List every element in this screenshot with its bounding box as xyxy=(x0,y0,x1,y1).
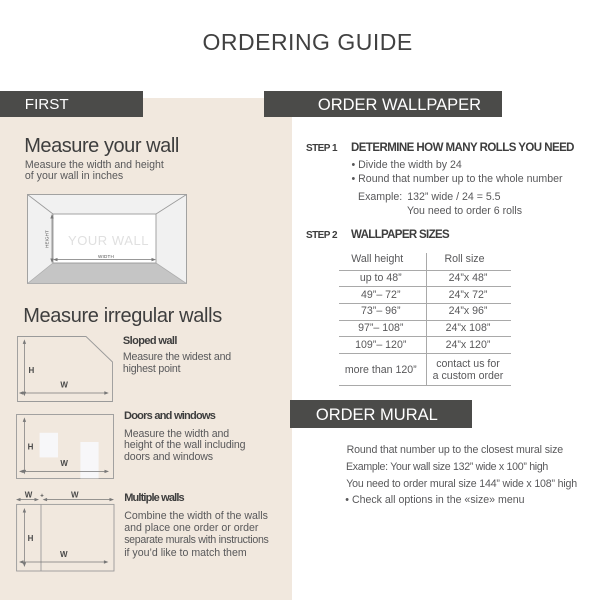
svg-text:YOUR WALL: YOUR WALL xyxy=(68,233,149,248)
svg-text:W: W xyxy=(60,550,68,559)
svg-text:H: H xyxy=(28,366,34,375)
svg-text:+: + xyxy=(40,493,44,499)
svg-text:W: W xyxy=(25,491,33,500)
svg-text:W: W xyxy=(60,458,68,467)
svg-text:W: W xyxy=(60,381,68,390)
svg-text:HEIGHT: HEIGHT xyxy=(45,230,50,248)
svg-text:H: H xyxy=(28,442,34,451)
svg-text:WIDTH: WIDTH xyxy=(98,254,114,259)
svg-text:W: W xyxy=(71,491,79,500)
svg-text:H: H xyxy=(28,534,34,543)
